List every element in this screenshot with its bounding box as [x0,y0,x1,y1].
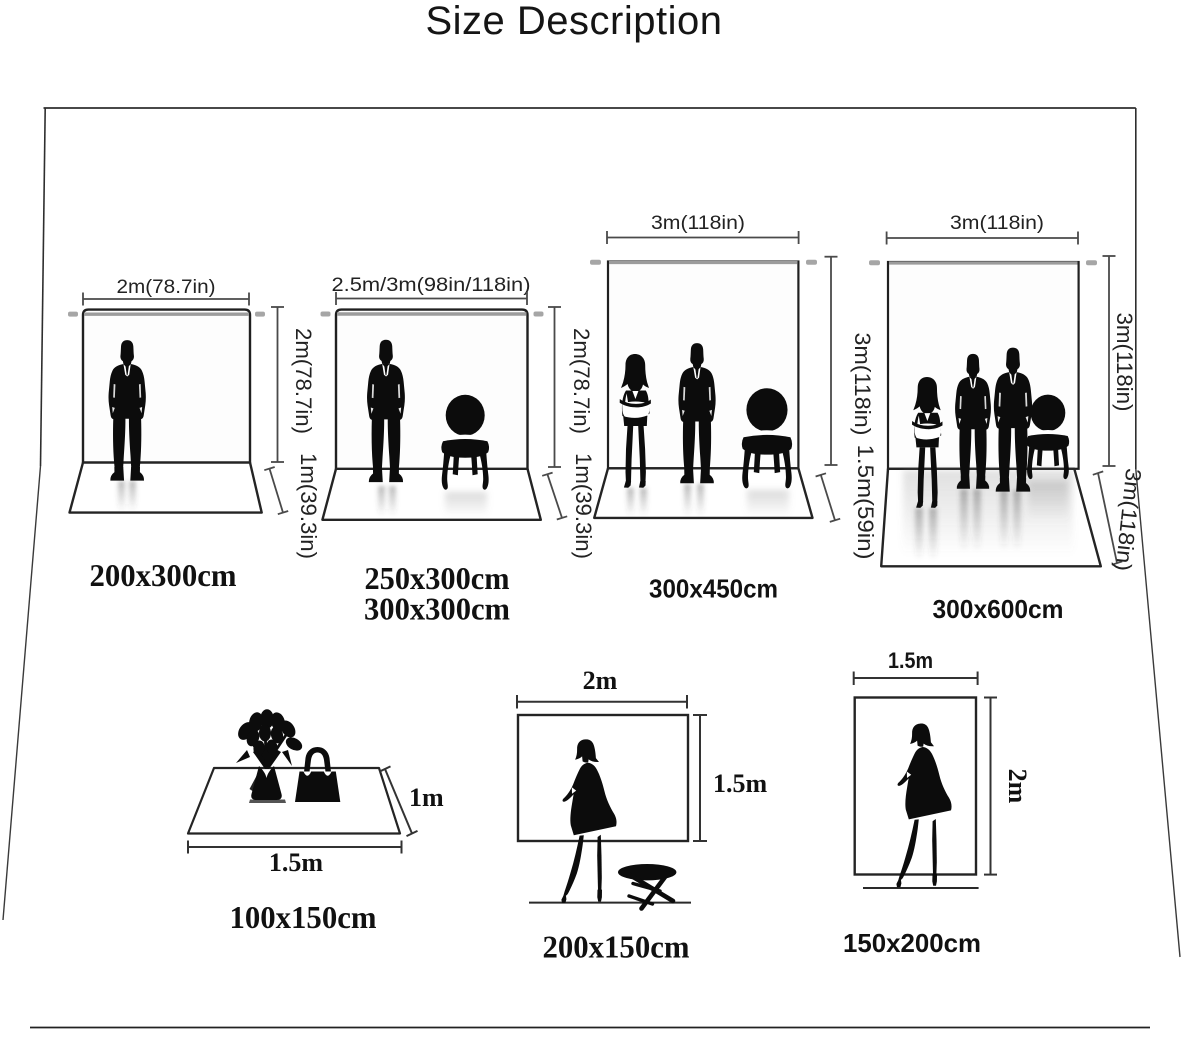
svg-text:2m(78.7in): 2m(78.7in) [117,276,216,298]
svg-text:100x150cm: 100x150cm [230,899,377,935]
svg-text:150x200cm: 150x200cm [843,928,981,958]
svg-text:2m: 2m [1003,769,1032,804]
svg-text:300x300cm: 300x300cm [364,591,510,627]
svg-text:Size Description: Size Description [425,0,722,43]
svg-text:200x300cm: 200x300cm [90,557,237,593]
svg-text:3m(118in): 3m(118in) [950,212,1044,234]
svg-text:3m(118in): 3m(118in) [651,212,745,234]
svg-text:200x150cm: 200x150cm [543,929,690,965]
svg-text:3m(118in): 3m(118in) [850,333,875,436]
svg-text:1m: 1m [409,783,444,812]
svg-text:2.5m/3m(98in/118in): 2.5m/3m(98in/118in) [332,274,531,296]
svg-text:1m(39.3in): 1m(39.3in) [296,453,321,559]
svg-text:300x450cm: 300x450cm [649,574,778,604]
svg-text:2m: 2m [583,666,618,695]
svg-text:1.5m: 1.5m [713,769,768,798]
svg-text:1.5m(59in): 1.5m(59in) [853,445,878,560]
svg-text:1m(39.3in): 1m(39.3in) [571,453,596,559]
svg-text:3m(118in): 3m(118in) [1112,313,1137,412]
svg-text:3m(118in): 3m(118in) [1111,467,1147,572]
svg-text:1.5m: 1.5m [888,648,933,673]
svg-text:300x600cm: 300x600cm [933,594,1064,624]
svg-text:1.5m: 1.5m [269,848,324,877]
svg-text:2m(78.7in): 2m(78.7in) [291,328,316,434]
svg-text:2m(78.7in): 2m(78.7in) [569,328,594,434]
